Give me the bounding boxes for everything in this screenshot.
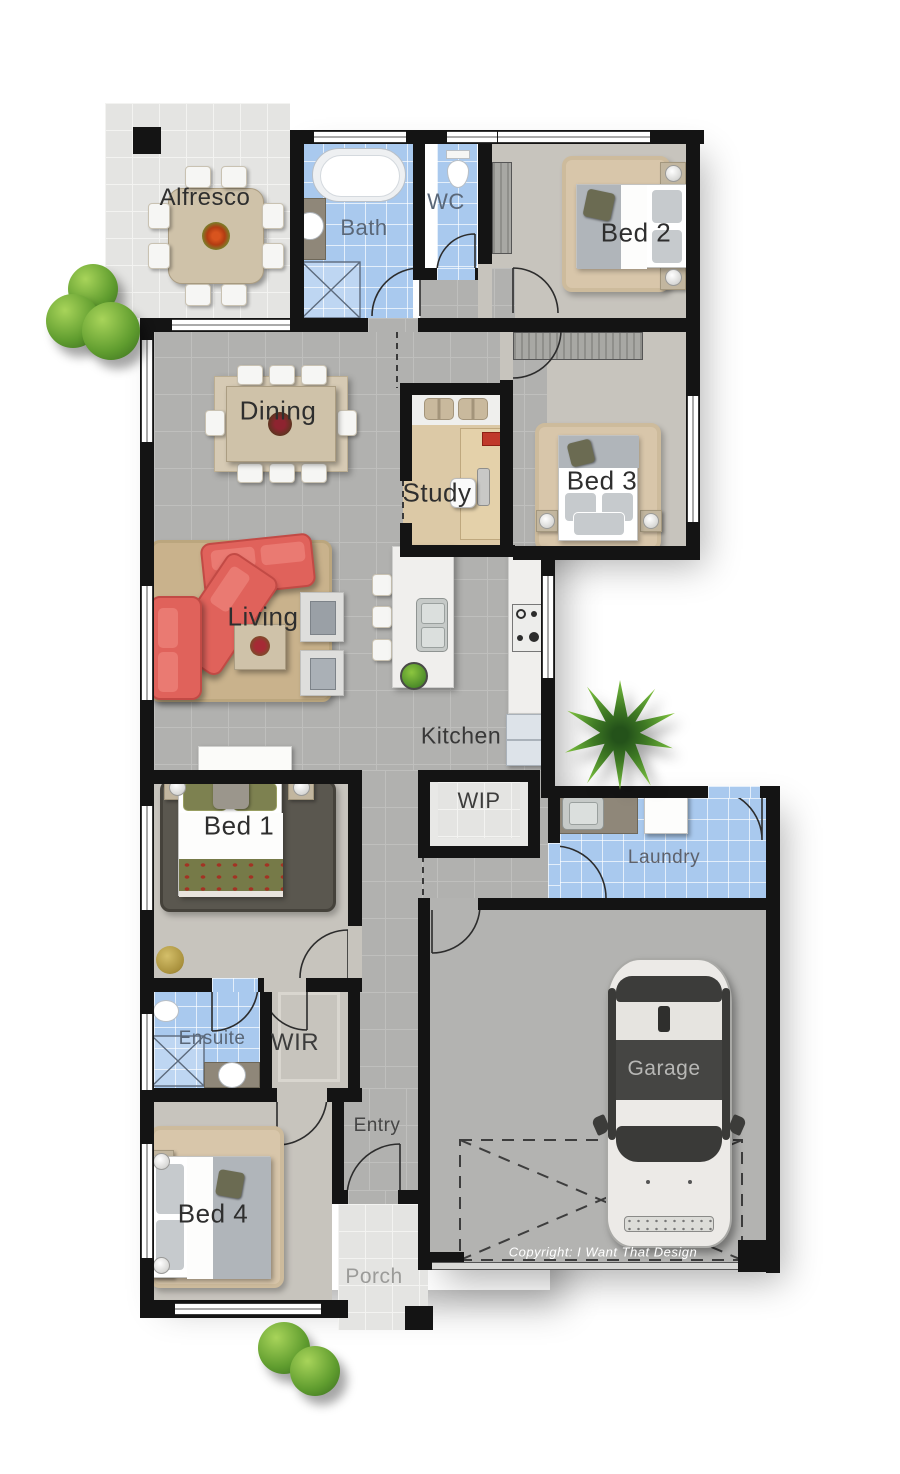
bed4-lamp xyxy=(153,1257,170,1274)
wall xyxy=(418,846,540,858)
wall xyxy=(140,1088,362,1102)
dining-chair xyxy=(337,410,357,436)
fridge xyxy=(506,714,544,766)
bed1-blanket xyxy=(179,859,283,891)
alfresco-centerpiece xyxy=(202,222,230,250)
dining-chair xyxy=(301,365,327,385)
sofa-cushion xyxy=(260,541,306,565)
wall xyxy=(548,898,766,910)
wall xyxy=(766,786,780,1273)
room-label-ensuite: Ensuite xyxy=(179,1028,246,1050)
window xyxy=(542,576,554,678)
kitchen-stool xyxy=(372,574,392,596)
bed2-lamp xyxy=(665,165,682,182)
wall xyxy=(413,140,425,280)
sink-bowl xyxy=(421,603,445,624)
door-opening xyxy=(708,786,760,798)
alfresco-chair xyxy=(262,243,284,269)
wall xyxy=(348,992,360,1088)
bush-blob xyxy=(290,1346,340,1396)
wall xyxy=(290,130,304,332)
wall xyxy=(478,318,700,332)
wc-toilet-tank xyxy=(446,150,470,159)
kitchen-stool xyxy=(372,606,392,628)
bed3-lamp xyxy=(643,513,659,529)
garage-door xyxy=(432,1262,738,1270)
bed3-lamp xyxy=(539,513,555,529)
room-label-porch: Porch xyxy=(345,1265,402,1289)
bathtub-inner xyxy=(320,155,400,197)
wall xyxy=(140,770,362,784)
window xyxy=(314,131,406,143)
room-label-bed3: Bed 3 xyxy=(567,466,637,497)
window xyxy=(498,131,650,143)
room-label-laundry: Laundry xyxy=(628,847,700,869)
dining-chair xyxy=(205,410,225,436)
door-opening xyxy=(478,264,492,318)
door-opening xyxy=(277,1088,327,1102)
window xyxy=(687,396,699,522)
alfresco-post xyxy=(133,127,161,154)
car-grill xyxy=(624,1216,714,1232)
room-label-wir: WIR xyxy=(271,1029,319,1057)
alfresco-chair xyxy=(221,284,247,306)
bed1-pouf xyxy=(156,946,184,974)
console-table xyxy=(198,746,292,772)
room-label-bed1: Bed 1 xyxy=(204,811,274,842)
car-rear-window xyxy=(616,976,722,1002)
alfresco-chair xyxy=(262,203,284,229)
wall xyxy=(418,770,430,858)
room-label-wc: WC xyxy=(427,189,465,215)
palm-tree-icon xyxy=(565,680,675,790)
burner xyxy=(531,611,537,617)
room-label-wip: WIP xyxy=(457,788,500,814)
bed3-pillow xyxy=(573,512,625,536)
car-hood-dot xyxy=(688,1180,692,1184)
bed4-cushion xyxy=(215,1169,245,1199)
window xyxy=(141,806,153,910)
window xyxy=(141,1144,153,1258)
room-label-kitchen: Kitchen xyxy=(421,723,501,750)
cooktop xyxy=(512,604,542,652)
window xyxy=(141,586,153,700)
bush-icon xyxy=(252,1318,352,1413)
wall xyxy=(400,383,412,481)
door-opening xyxy=(264,978,306,992)
bed2-lamp xyxy=(665,269,682,286)
dining-chair xyxy=(301,463,327,483)
wall xyxy=(528,770,540,858)
room-label-living: Living xyxy=(228,602,299,633)
dining-chair xyxy=(269,365,295,385)
dining-chair xyxy=(269,463,295,483)
coffee-table-flowers xyxy=(250,636,270,656)
car-side-window xyxy=(722,988,730,1140)
sofa-cushion xyxy=(158,608,178,648)
sink-bowl xyxy=(421,627,445,648)
alfresco-chair xyxy=(185,284,211,306)
study-book xyxy=(482,432,502,446)
living-sofa-2 xyxy=(150,596,202,700)
wall xyxy=(418,770,540,782)
window xyxy=(447,131,497,143)
dining-chair xyxy=(237,463,263,483)
room-label-alfresco: Alfresco xyxy=(160,184,251,212)
side-table-top xyxy=(310,601,336,635)
living-side-table xyxy=(300,592,344,642)
door-opening xyxy=(548,843,560,898)
ensuite-toilet-bowl xyxy=(153,1000,179,1022)
burner xyxy=(517,635,523,641)
side-table-top xyxy=(310,658,336,690)
room-label-bath: Bath xyxy=(340,215,387,241)
front-door-opening xyxy=(348,1190,398,1204)
sofa-cushion xyxy=(158,652,178,692)
door-opening xyxy=(500,332,513,380)
room-label-study: Study xyxy=(403,478,472,509)
kitchen-plant xyxy=(400,662,428,690)
burner xyxy=(516,609,526,619)
palm-fronds xyxy=(565,680,675,790)
bush-icon xyxy=(40,258,160,378)
wall xyxy=(332,1190,348,1204)
burner xyxy=(529,632,539,642)
dining-chair xyxy=(237,365,263,385)
floor-plan: Alfresco Bath WC Bed 2 Dining Study Bed … xyxy=(0,0,900,1474)
door-opening xyxy=(430,898,478,910)
car xyxy=(606,958,732,1248)
sliding-door xyxy=(172,319,290,331)
window xyxy=(141,1014,153,1090)
porch-post xyxy=(405,1306,433,1330)
car-sunroof-vent xyxy=(658,1006,670,1032)
door-opening xyxy=(348,926,362,978)
room-label-garage: Garage xyxy=(627,1057,700,1081)
fridge-door-line xyxy=(507,739,545,741)
wall xyxy=(400,545,515,557)
door-opening xyxy=(212,978,258,992)
car-hood-dot xyxy=(646,1180,650,1184)
wall xyxy=(418,898,430,1270)
bed1-base xyxy=(179,891,283,897)
study-towel-roll xyxy=(458,398,488,420)
wall xyxy=(332,1088,344,1204)
wall xyxy=(400,523,412,557)
wall xyxy=(398,1190,430,1204)
wall xyxy=(738,1240,780,1272)
window xyxy=(175,1303,321,1315)
bush-blob xyxy=(82,302,140,360)
room-label-bed4: Bed 4 xyxy=(178,1199,248,1230)
room-label-bed2: Bed 2 xyxy=(601,218,671,249)
laundry-sink-bowl xyxy=(569,802,598,825)
kitchen-sink xyxy=(416,598,448,652)
door-opening xyxy=(437,268,475,280)
ensuite-basin xyxy=(218,1062,246,1088)
living-side-table xyxy=(300,650,344,696)
wall xyxy=(400,383,510,395)
study-keyboard xyxy=(477,468,490,506)
kitchen-stool xyxy=(372,639,392,661)
wall xyxy=(541,700,555,798)
bathtub xyxy=(312,148,406,202)
room-label-dining: Dining xyxy=(240,396,317,427)
door-opening xyxy=(368,318,418,332)
study-towel-roll xyxy=(424,398,454,420)
room-label-entry: Entry xyxy=(354,1115,401,1137)
car-windshield xyxy=(616,1126,722,1162)
car-side-window xyxy=(608,988,616,1140)
bed4-lamp xyxy=(153,1153,170,1170)
copyright-text: Copyright: I Want That Design xyxy=(509,1245,697,1260)
laundry-sink xyxy=(562,796,604,830)
